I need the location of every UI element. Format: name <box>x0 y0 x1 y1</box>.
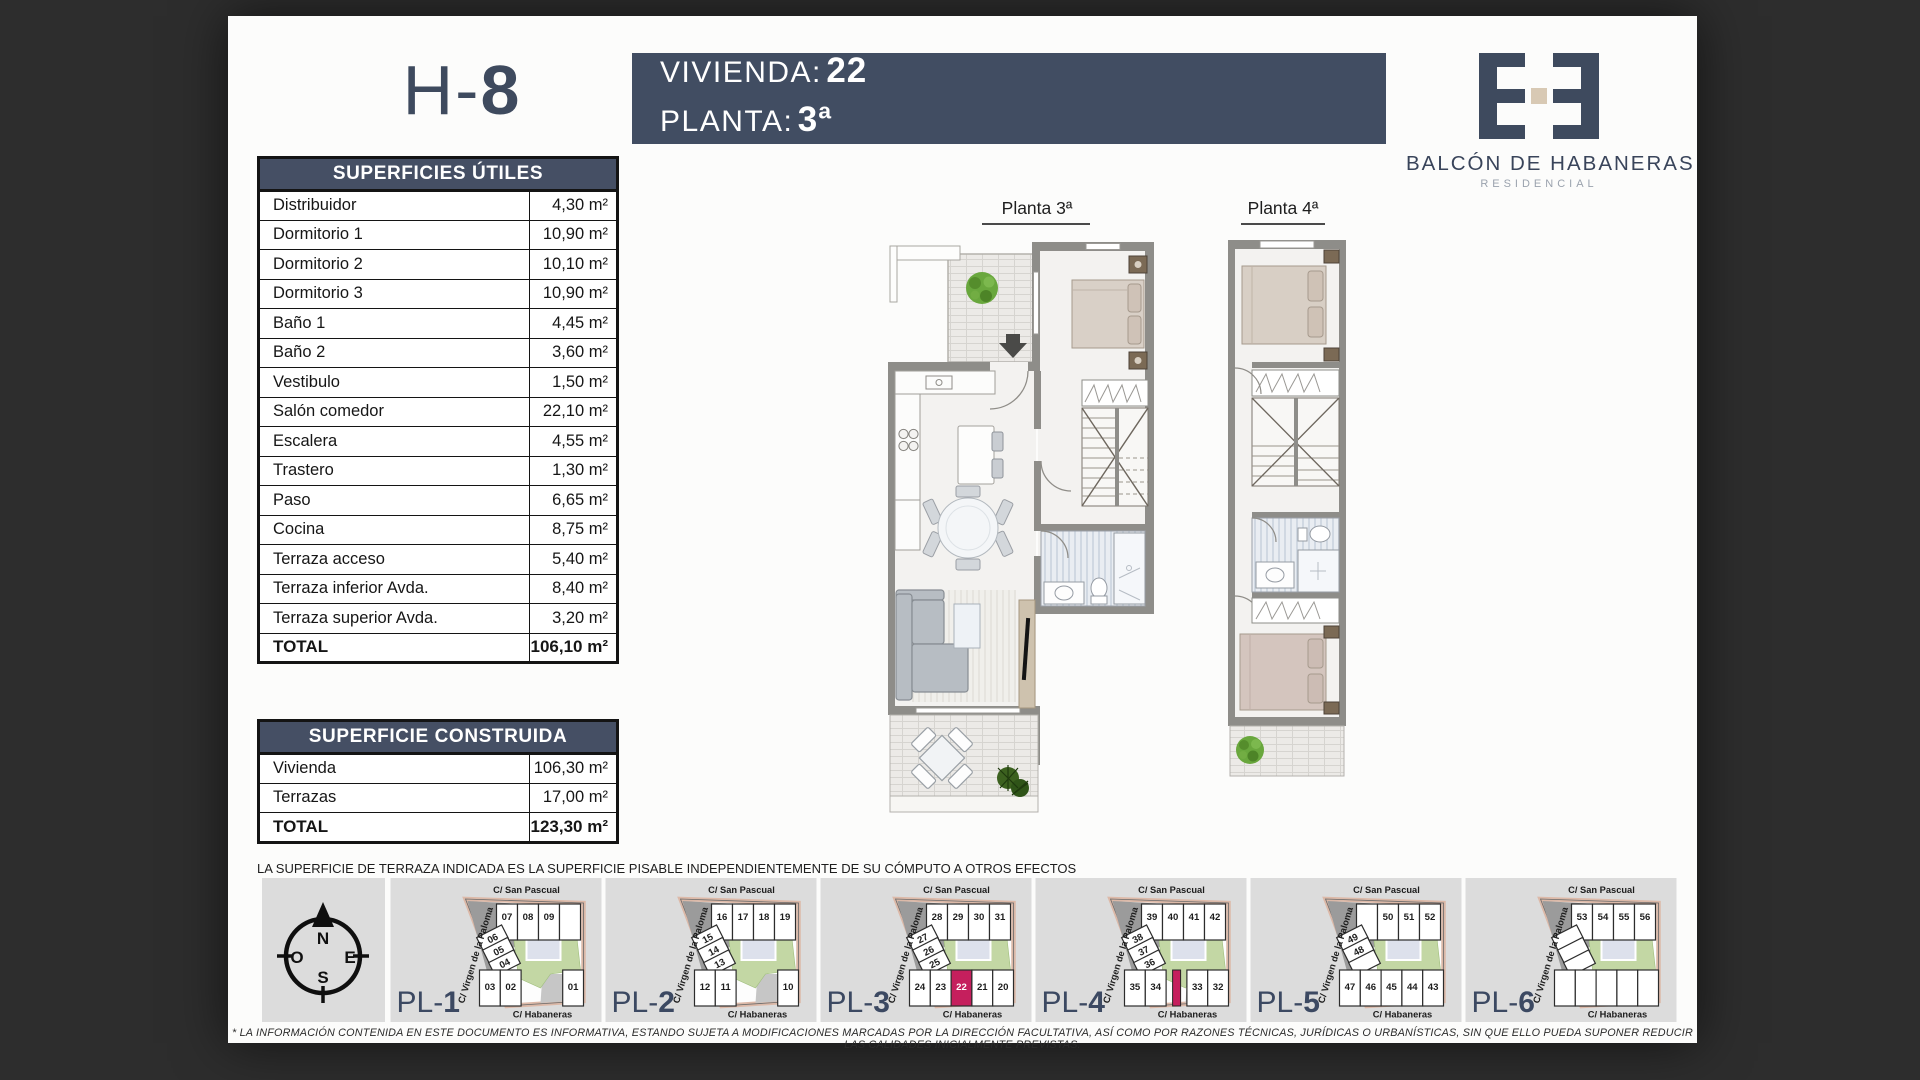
svg-text:50: 50 <box>1383 912 1394 923</box>
table-row: Dormitorio 110,90 m² <box>259 220 618 250</box>
site-plan-tile-PL-1: 070809060504030201C/ San PascualC/ Haban… <box>390 878 602 1022</box>
table-row: Terrazas17,00 m² <box>259 783 618 813</box>
room-label: Paso <box>259 486 530 516</box>
street-label-top: C/ San Pascual <box>708 885 775 895</box>
unit-box: 24 <box>910 970 931 1006</box>
stairs <box>1252 398 1339 486</box>
window <box>1260 241 1314 248</box>
unit-box: 18 <box>754 904 775 940</box>
table-row: Baño 14,45 m² <box>259 309 618 339</box>
table-total-row: TOTAL106,10 m² <box>259 633 618 663</box>
header-banner: VIVIENDA: 22 PLANTA: 3ª <box>632 53 1386 144</box>
area-value: 1,50 m² <box>530 368 618 398</box>
area-value: 10,90 m² <box>530 220 618 250</box>
svg-text:10: 10 <box>783 982 794 993</box>
unit-box: 45 <box>1381 970 1402 1006</box>
wardrobe <box>1252 598 1339 623</box>
svg-text:39: 39 <box>1147 912 1158 923</box>
area-value: 5,40 m² <box>530 545 618 575</box>
brand-subtitle: RESIDENCIAL <box>1406 178 1672 190</box>
area-value: 4,45 m² <box>530 309 618 339</box>
tree-icon <box>1236 736 1264 764</box>
table-row: Trastero1,30 m² <box>259 456 618 486</box>
pl-label: PL-6 <box>1472 986 1535 1019</box>
table-row: Dormitorio 310,90 m² <box>259 279 618 309</box>
svg-text:35: 35 <box>1130 982 1141 993</box>
pl-label: PL-1 <box>397 986 460 1019</box>
bed <box>1242 266 1326 344</box>
svg-text:02: 02 <box>505 982 516 993</box>
table-row: Terraza acceso5,40 m² <box>259 545 618 575</box>
superficie-construida-body: Vivienda106,30 m²Terrazas17,00 m²TOTAL12… <box>259 754 618 843</box>
svg-text:08: 08 <box>523 912 534 923</box>
svg-text:23: 23 <box>935 982 946 993</box>
svg-text:33: 33 <box>1192 982 1203 993</box>
unit-box: 12 <box>695 970 716 1006</box>
planta-label: PLANTA: <box>660 105 793 138</box>
unit-box: 33 <box>1187 970 1208 1006</box>
room-label: Baño 2 <box>259 338 530 368</box>
window <box>916 708 1020 713</box>
unit-box: 02 <box>500 970 521 1006</box>
svg-text:16: 16 <box>717 912 728 923</box>
compass-s: S <box>317 968 328 987</box>
site-plan-map: 16171819151413121110C/ San PascualC/ Hab… <box>605 878 817 1022</box>
street-label-top: C/ San Pascual <box>493 885 560 895</box>
pl-label: PL-4 <box>1042 986 1106 1019</box>
plan3-label: Planta 3ª <box>972 198 1102 219</box>
compass-tile: N O E S <box>262 878 385 1022</box>
street-label-bottom: C/ Habaneras <box>1588 1010 1647 1020</box>
svg-text:55: 55 <box>1619 912 1630 923</box>
room-label: TOTAL <box>259 633 530 663</box>
area-value: 17,00 m² <box>530 783 618 813</box>
unit-box: 42 <box>1205 904 1226 940</box>
svg-text:47: 47 <box>1345 982 1356 993</box>
pl-label: PL-3 <box>827 986 890 1019</box>
svg-text:32: 32 <box>1213 982 1224 993</box>
unit-code-prefix: H- <box>403 51 481 129</box>
svg-text:43: 43 <box>1428 982 1439 993</box>
room-label: Terraza superior Avda. <box>259 604 530 634</box>
svg-text:22: 22 <box>956 982 967 993</box>
superficies-utiles-body: Distribuidor4,30 m²Dormitorio 110,90 m²D… <box>259 191 618 663</box>
unit-box <box>560 904 581 940</box>
svg-text:42: 42 <box>1210 912 1221 923</box>
unit-box: 54 <box>1593 904 1614 940</box>
svg-text:28: 28 <box>932 912 943 923</box>
site-plan-map: 070809060504030201C/ San PascualC/ Haban… <box>390 878 602 1022</box>
unit-box: 19 <box>775 904 796 940</box>
street-label-bottom: C/ Habaneras <box>1373 1010 1432 1020</box>
svg-text:41: 41 <box>1189 912 1200 923</box>
room-label: Distribuidor <box>259 191 530 221</box>
table-row: Paso6,65 m² <box>259 486 618 516</box>
svg-text:34: 34 <box>1150 982 1161 993</box>
unit-box: 01 <box>563 970 584 1006</box>
unit-box: 20 <box>993 970 1014 1006</box>
svg-text:45: 45 <box>1386 982 1397 993</box>
area-value: 3,60 m² <box>530 338 618 368</box>
svg-text:54: 54 <box>1598 912 1609 923</box>
room-label: Terraza inferior Avda. <box>259 574 530 604</box>
unit-code-title: H-8 <box>356 54 566 126</box>
unit-box: 50 <box>1378 904 1399 940</box>
vivienda-value: 22 <box>826 51 867 90</box>
unit-box: 34 <box>1145 970 1166 1006</box>
table-row: Terraza inferior Avda.8,40 m² <box>259 574 618 604</box>
street-label-bottom: C/ Habaneras <box>1158 1010 1217 1020</box>
unit-box: 10 <box>778 970 799 1006</box>
room-label: Trastero <box>259 456 530 486</box>
document-canvas: H-8 VIVIENDA: 22 PLANTA: 3ª BALCÓN DE HA… <box>0 0 1920 1080</box>
area-value: 4,55 m² <box>530 427 618 457</box>
pool <box>957 939 991 960</box>
unit-box: 09 <box>539 904 560 940</box>
superficies-utiles-table: SUPERFICIES ÚTILES Distribuidor4,30 m²Do… <box>257 156 619 664</box>
unit-box: 55 <box>1614 904 1635 940</box>
svg-text:44: 44 <box>1407 982 1418 993</box>
area-value: 6,65 m² <box>530 486 618 516</box>
unit-box: 29 <box>948 904 969 940</box>
unit-box: 17 <box>733 904 754 940</box>
pool <box>527 939 561 960</box>
room-label: Cocina <box>259 515 530 545</box>
svg-text:31: 31 <box>995 912 1006 923</box>
vivienda-label: VIVIENDA: <box>660 56 822 89</box>
pool <box>1387 939 1421 960</box>
floor-plan-planta-3 <box>886 238 1158 818</box>
wardrobe <box>1252 370 1339 396</box>
highlight-strip <box>1173 970 1181 1006</box>
terrace-footnote: LA SUPERFICIE DE TERRAZA INDICADA ES LA … <box>257 861 1076 876</box>
svg-text:12: 12 <box>700 982 711 993</box>
street-label-top: C/ San Pascual <box>1138 885 1205 895</box>
unit-box: 47 <box>1340 970 1361 1006</box>
table-header-row: SUPERFICIES ÚTILES <box>259 158 618 191</box>
unit-box: 46 <box>1360 970 1381 1006</box>
svg-text:20: 20 <box>998 982 1009 993</box>
svg-text:51: 51 <box>1404 912 1415 923</box>
area-value: 8,40 m² <box>530 574 618 604</box>
street-label-top: C/ San Pascual <box>923 885 990 895</box>
site-plan-tile-PL-5: 50515249484746454443C/ San PascualC/ Hab… <box>1250 878 1462 1022</box>
unit-box: 03 <box>480 970 501 1006</box>
table-title: SUPERFICIE CONSTRUIDA <box>259 721 618 754</box>
unit-box: 11 <box>715 970 736 1006</box>
street-label-bottom: C/ Habaneras <box>513 1010 572 1020</box>
area-value: 1,30 m² <box>530 456 618 486</box>
pool <box>1602 939 1636 960</box>
site-plan-map: 3940414238373635343332C/ San PascualC/ H… <box>1035 878 1247 1022</box>
site-plan-tile-PL-2: 16171819151413121110C/ San PascualC/ Hab… <box>605 878 817 1022</box>
window <box>1086 244 1120 250</box>
floor-plan-planta-4 <box>1228 240 1346 780</box>
table-title: SUPERFICIES ÚTILES <box>259 158 618 191</box>
superficie-construida-table: SUPERFICIE CONSTRUIDA Vivienda106,30 m²T… <box>257 719 619 844</box>
room-label: Dormitorio 3 <box>259 279 530 309</box>
bathroom <box>1041 531 1145 606</box>
unit-box: 52 <box>1420 904 1441 940</box>
table-row: Cocina8,75 m² <box>259 515 618 545</box>
table-row: Vivienda106,30 m² <box>259 754 618 784</box>
unit-box: 21 <box>972 970 993 1006</box>
unit-box: 44 <box>1402 970 1423 1006</box>
bed <box>1240 634 1326 710</box>
room-label: Dormitorio 2 <box>259 250 530 280</box>
area-value: 8,75 m² <box>530 515 618 545</box>
banner-vivienda-row: VIVIENDA: 22 <box>660 50 1386 99</box>
area-value: 3,20 m² <box>530 604 618 634</box>
svg-text:21: 21 <box>977 982 988 993</box>
svg-text:18: 18 <box>759 912 770 923</box>
wardrobe <box>1082 380 1148 406</box>
street-label-top: C/ San Pascual <box>1568 885 1635 895</box>
plan4-underline <box>1241 223 1325 225</box>
room-label: Escalera <box>259 427 530 457</box>
bed <box>1072 278 1146 350</box>
brand-name: BALCÓN DE HABANERAS <box>1406 152 1672 176</box>
site-plan-tile-PL-4: 3940414238373635343332C/ San PascualC/ H… <box>1035 878 1247 1022</box>
table-row: Salón comedor22,10 m² <box>259 397 618 427</box>
area-value: 106,10 m² <box>530 633 618 663</box>
awning <box>890 246 960 260</box>
unit-box: 51 <box>1399 904 1420 940</box>
tree-icon <box>966 272 998 304</box>
table-row: Dormitorio 210,10 m² <box>259 250 618 280</box>
stairs <box>1082 408 1148 506</box>
svg-text:19: 19 <box>780 912 791 923</box>
svg-text:53: 53 <box>1577 912 1588 923</box>
plan3-underline <box>982 223 1090 225</box>
planta-value: 3ª <box>798 100 832 139</box>
table-row: Escalera4,55 m² <box>259 427 618 457</box>
unit-box: 32 <box>1208 970 1229 1006</box>
site-plan-map: 282930312726252423222120C/ San PascualC/… <box>820 878 1032 1022</box>
unit-box: 08 <box>518 904 539 940</box>
site-plan-tile-PL-3: 282930312726252423222120C/ San PascualC/… <box>820 878 1032 1022</box>
area-value: 106,30 m² <box>530 754 618 784</box>
compass-e: E <box>344 948 355 967</box>
table-row: Distribuidor4,30 m² <box>259 191 618 221</box>
unit-box: 35 <box>1125 970 1146 1006</box>
street-label-bottom: C/ Habaneras <box>943 1010 1002 1020</box>
unit-box: 40 <box>1163 904 1184 940</box>
area-value: 10,10 m² <box>530 250 618 280</box>
svg-text:29: 29 <box>953 912 964 923</box>
banner-planta-row: PLANTA: 3ª <box>660 99 1386 148</box>
room-label: Terraza acceso <box>259 545 530 575</box>
room-label: Terrazas <box>259 783 530 813</box>
unit-box: 31 <box>990 904 1011 940</box>
svg-text:03: 03 <box>485 982 496 993</box>
area-value: 22,10 m² <box>530 397 618 427</box>
svg-text:30: 30 <box>974 912 985 923</box>
svg-text:01: 01 <box>568 982 579 993</box>
door-opening <box>990 362 1028 371</box>
svg-text:52: 52 <box>1425 912 1436 923</box>
unit-box: 41 <box>1184 904 1205 940</box>
highlight-unit-box: 22 <box>951 970 972 1006</box>
street-label-bottom: C/ Habaneras <box>728 1010 787 1020</box>
unit-box <box>1638 970 1659 1006</box>
unit-box <box>1555 970 1576 1006</box>
compass-icon: N O E S <box>262 878 385 1022</box>
svg-text:46: 46 <box>1365 982 1376 993</box>
area-value: 123,30 m² <box>530 813 618 843</box>
bathroom <box>1252 518 1339 592</box>
site-plan-map: 53545556C/ San PascualC/ HabanerasC/ Vir… <box>1465 878 1677 1022</box>
compass-o: O <box>290 948 303 967</box>
plan-sheet-page: H-8 VIVIENDA: 22 PLANTA: 3ª BALCÓN DE HA… <box>228 16 1697 1043</box>
brand-logo: BALCÓN DE HABANERAS RESIDENCIAL <box>1406 52 1672 190</box>
pool <box>742 939 776 960</box>
room-label: Dormitorio 1 <box>259 220 530 250</box>
table-row: Baño 23,60 m² <box>259 338 618 368</box>
table-header-row: SUPERFICIE CONSTRUIDA <box>259 721 618 754</box>
unit-box: 30 <box>969 904 990 940</box>
site-plan-tile-PL-6: 53545556C/ San PascualC/ HabanerasC/ Vir… <box>1465 878 1677 1022</box>
pool <box>1172 939 1206 960</box>
svg-text:24: 24 <box>915 982 926 993</box>
area-value: 10,90 m² <box>530 279 618 309</box>
room-label: TOTAL <box>259 813 530 843</box>
svg-text:40: 40 <box>1168 912 1179 923</box>
area-value: 4,30 m² <box>530 191 618 221</box>
table-row: Vestibulo1,50 m² <box>259 368 618 398</box>
svg-text:11: 11 <box>721 982 732 993</box>
coffee-table <box>954 604 980 648</box>
plan4-label: Planta 4ª <box>1218 198 1348 219</box>
brand-logo-icon <box>1478 52 1600 142</box>
pl-label: PL-5 <box>1257 986 1320 1019</box>
compass-n: N <box>317 929 329 948</box>
unit-box: 56 <box>1635 904 1656 940</box>
unit-box <box>1575 970 1596 1006</box>
table-total-row: TOTAL123,30 m² <box>259 813 618 843</box>
site-plan-map: 50515249484746454443C/ San PascualC/ Hab… <box>1250 878 1462 1022</box>
table-row: Terraza superior Avda.3,20 m² <box>259 604 618 634</box>
room-label: Baño 1 <box>259 309 530 339</box>
svg-text:56: 56 <box>1640 912 1651 923</box>
window <box>1034 272 1039 334</box>
room-label: Vestibulo <box>259 368 530 398</box>
unit-box: 23 <box>930 970 951 1006</box>
unit-code-number: 8 <box>480 51 519 129</box>
street-label-top: C/ San Pascual <box>1353 885 1420 895</box>
legal-disclaimer: * LA INFORMACIÓN CONTENIDA EN ESTE DOCUM… <box>228 1027 1697 1051</box>
unit-box <box>1617 970 1638 1006</box>
unit-box <box>1596 970 1617 1006</box>
svg-text:09: 09 <box>544 912 555 923</box>
room-label: Salón comedor <box>259 397 530 427</box>
pl-label: PL-2 <box>612 986 675 1019</box>
room-label: Vivienda <box>259 754 530 784</box>
svg-text:07: 07 <box>502 912 513 923</box>
svg-text:17: 17 <box>738 912 749 923</box>
unit-box: 43 <box>1423 970 1444 1006</box>
